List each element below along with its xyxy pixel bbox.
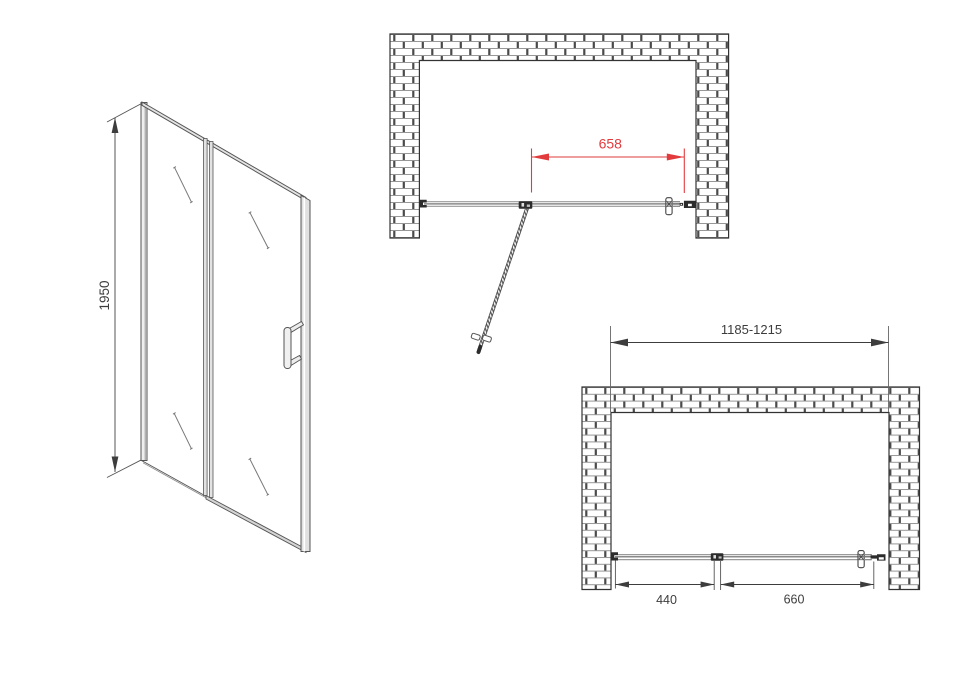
svg-text:1950: 1950: [97, 280, 112, 310]
svg-text:1185-1215: 1185-1215: [721, 322, 782, 337]
svg-text:440: 440: [656, 593, 677, 607]
svg-text:660: 660: [784, 593, 805, 607]
svg-text:658: 658: [599, 136, 623, 152]
